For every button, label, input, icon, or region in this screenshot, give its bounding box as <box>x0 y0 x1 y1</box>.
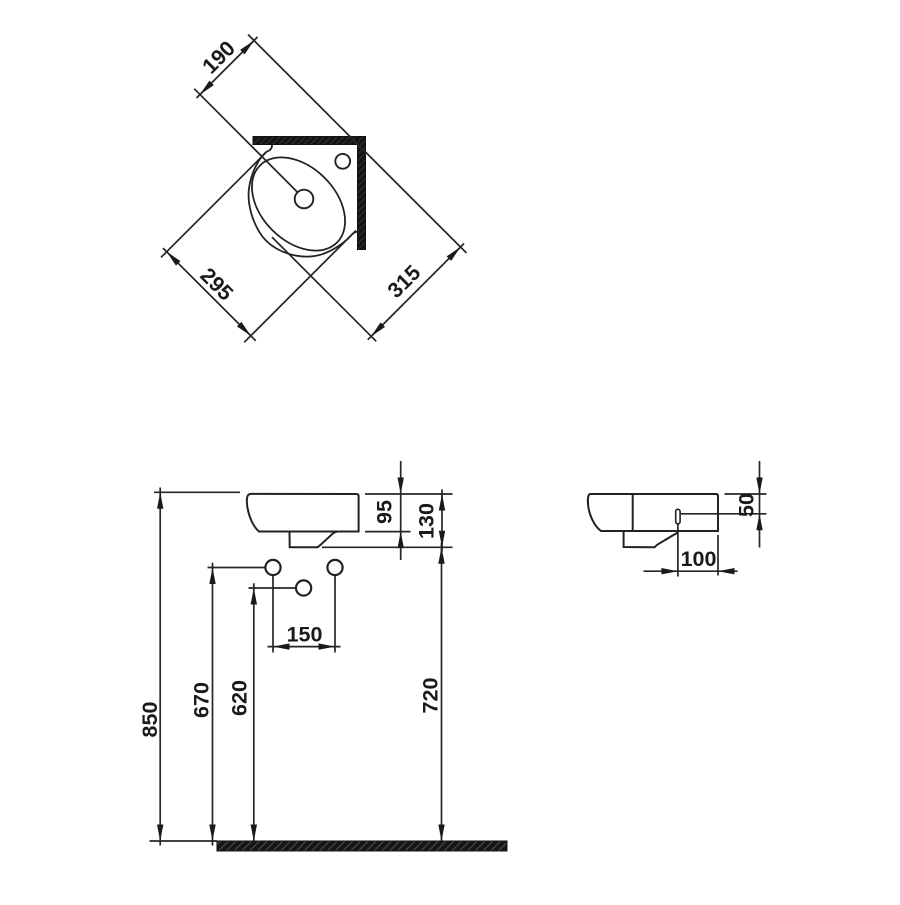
svg-text:620: 620 <box>228 680 252 716</box>
svg-text:95: 95 <box>373 500 397 524</box>
svg-text:850: 850 <box>138 702 162 738</box>
svg-text:50: 50 <box>735 493 759 517</box>
svg-text:100: 100 <box>681 547 717 571</box>
svg-text:720: 720 <box>419 678 443 714</box>
svg-text:670: 670 <box>190 682 214 718</box>
svg-text:150: 150 <box>287 623 323 647</box>
svg-text:130: 130 <box>415 503 439 539</box>
